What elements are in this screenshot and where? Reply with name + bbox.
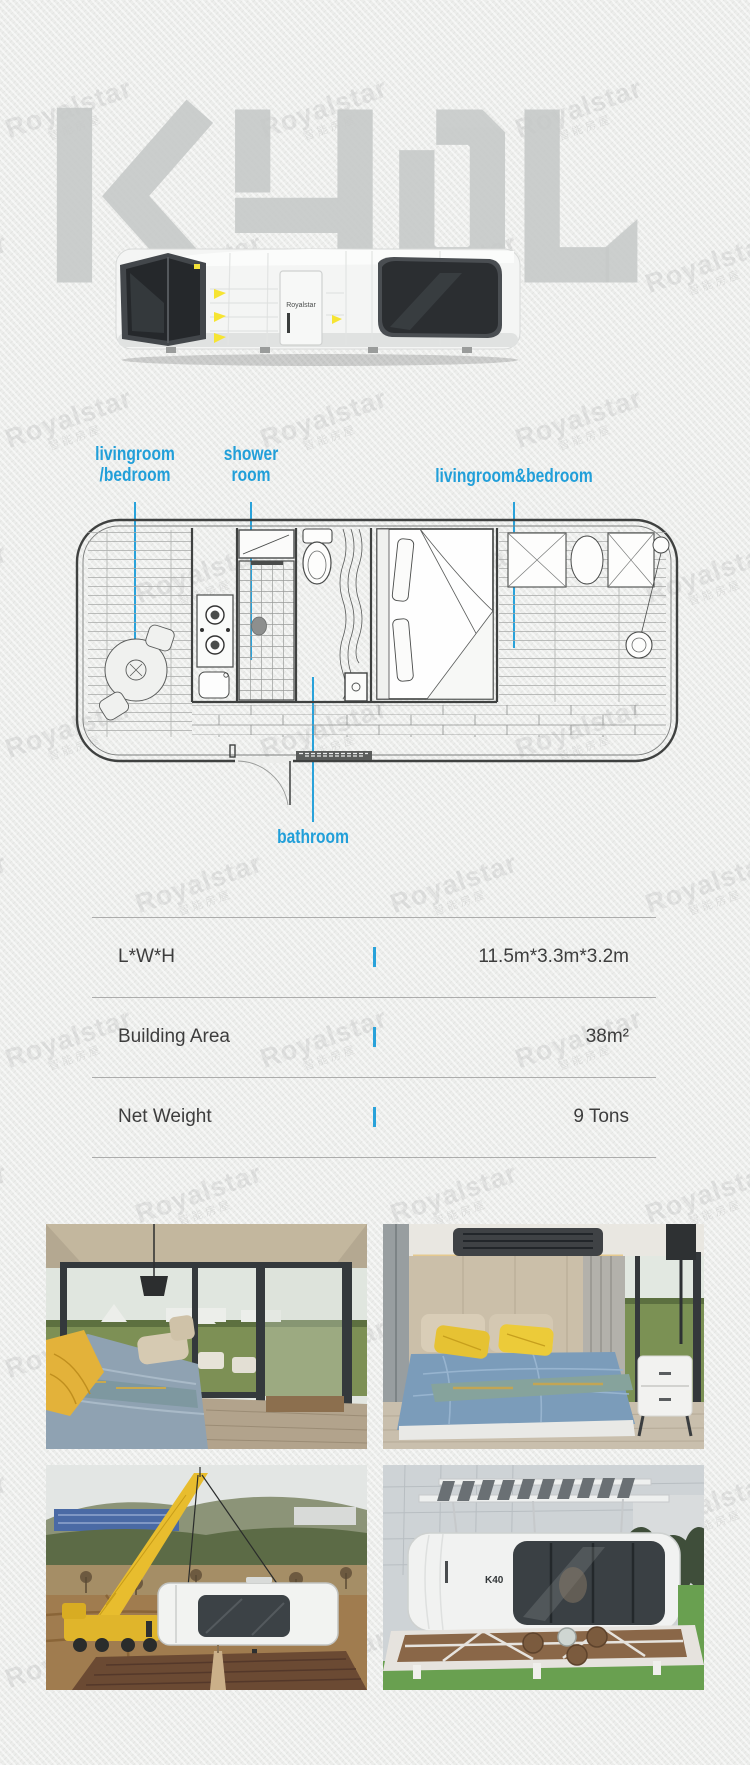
photo-crane-installation [46, 1465, 367, 1690]
spec-value: 11.5m*3.3m*3.2m [478, 946, 629, 968]
photo-crane-installation-image [46, 1465, 367, 1690]
spec-label: Net Weight [118, 1106, 212, 1128]
floor-plan-drawing [75, 515, 679, 810]
spec-value: 38m² [586, 1026, 629, 1048]
spec-value: 9 Tons [573, 1106, 629, 1128]
label-bathroom: bathroom [277, 827, 349, 848]
product-flyer-page: Royalstar智能房屋Royalstar智能房屋Royalstar智能房屋R… [0, 0, 750, 1765]
house-render-image: Royalstar [110, 233, 525, 368]
photo-interior-bedroom-image [383, 1224, 704, 1449]
label-livingroom-and-bedroom: livingroom&bedroom [435, 466, 593, 487]
spec-row-dimensions: L*W*H 11.5m*3.3m*3.2m [92, 917, 656, 997]
watermark-text: Royalstar智能房屋 [0, 850, 15, 931]
watermark-text: Royalstar智能房屋 [0, 1470, 15, 1551]
spec-label: L*W*H [118, 946, 175, 968]
photo-exterior-deck: K40 [383, 1465, 704, 1690]
pod-model-badge: K40 [485, 1575, 504, 1586]
spec-row-building-area: Building Area 38m² [92, 997, 656, 1077]
watermark-text: Royalstar智能房屋 [512, 385, 650, 466]
spec-row-net-weight: Net Weight 9 Tons [92, 1077, 656, 1157]
watermark-text: Royalstar智能房屋 [642, 230, 750, 311]
photo-interior-livingroom-image [46, 1224, 367, 1449]
spec-divider-tick [373, 947, 376, 967]
photo-exterior-deck-image: K40 [383, 1465, 704, 1690]
watermark-text: Royalstar智能房屋 [0, 230, 15, 311]
spec-label: Building Area [118, 1026, 230, 1048]
watermark-text: Royalstar智能房屋 [0, 1160, 15, 1241]
spec-divider-tick [373, 1027, 376, 1047]
photo-interior-livingroom [46, 1224, 367, 1449]
photo-interior-bedroom [383, 1224, 704, 1449]
door-brand-text: Royalstar [286, 302, 316, 309]
house-render: Royalstar [110, 233, 525, 373]
spec-divider-tick [373, 1107, 376, 1127]
watermark-text: Royalstar智能房屋 [642, 850, 750, 931]
label-shower-room: shower room [224, 444, 279, 486]
divider [92, 1157, 656, 1158]
label-livingroom-bedroom: livingroom /bedroom [95, 444, 175, 486]
watermark-text: Royalstar智能房屋 [0, 540, 15, 621]
floor-plan [75, 515, 679, 815]
